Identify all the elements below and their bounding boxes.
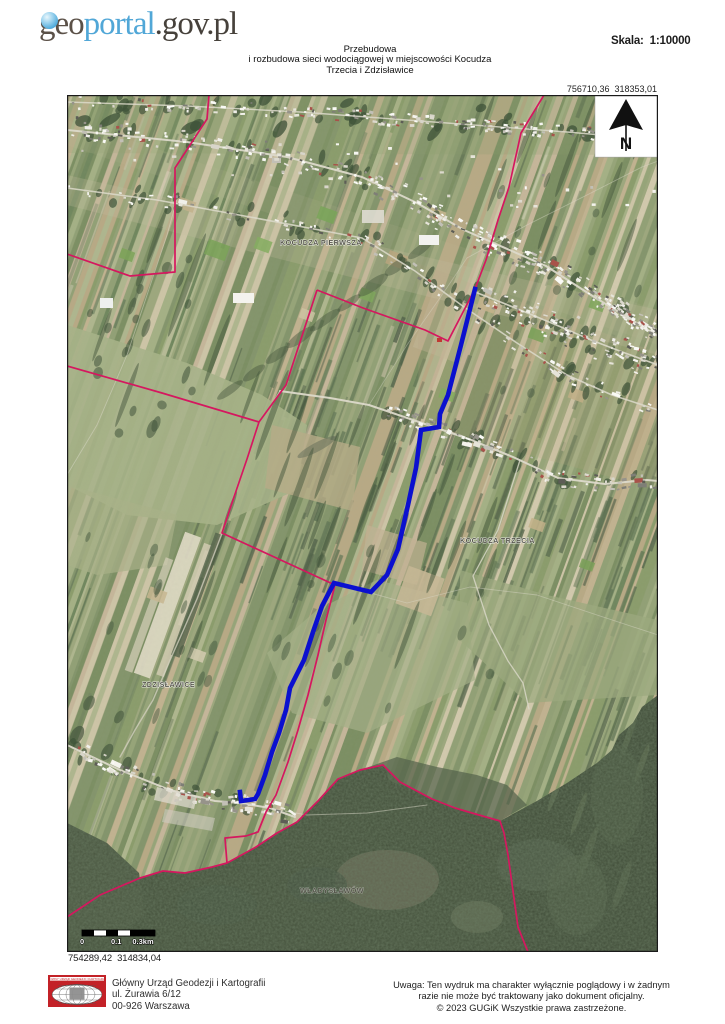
svg-text:N: N bbox=[620, 134, 632, 153]
svg-text:ZDZISŁAWICE: ZDZISŁAWICE bbox=[142, 680, 195, 689]
svg-text:0.1: 0.1 bbox=[111, 937, 121, 946]
svg-text:KOCUDZA PIERWSZA: KOCUDZA PIERWSZA bbox=[280, 238, 362, 247]
svg-text:WŁADYSŁAWÓW: WŁADYSŁAWÓW bbox=[300, 886, 364, 895]
svg-text:GŁÓWNY URZĄD GEODEZJI I KARTOG: GŁÓWNY URZĄD GEODEZJI I KARTOGRAFII bbox=[48, 976, 106, 981]
svg-text:0.3km: 0.3km bbox=[132, 937, 154, 946]
svg-text:0: 0 bbox=[80, 937, 84, 946]
svg-text:KOCUDZA TRZECIA: KOCUDZA TRZECIA bbox=[460, 536, 535, 545]
